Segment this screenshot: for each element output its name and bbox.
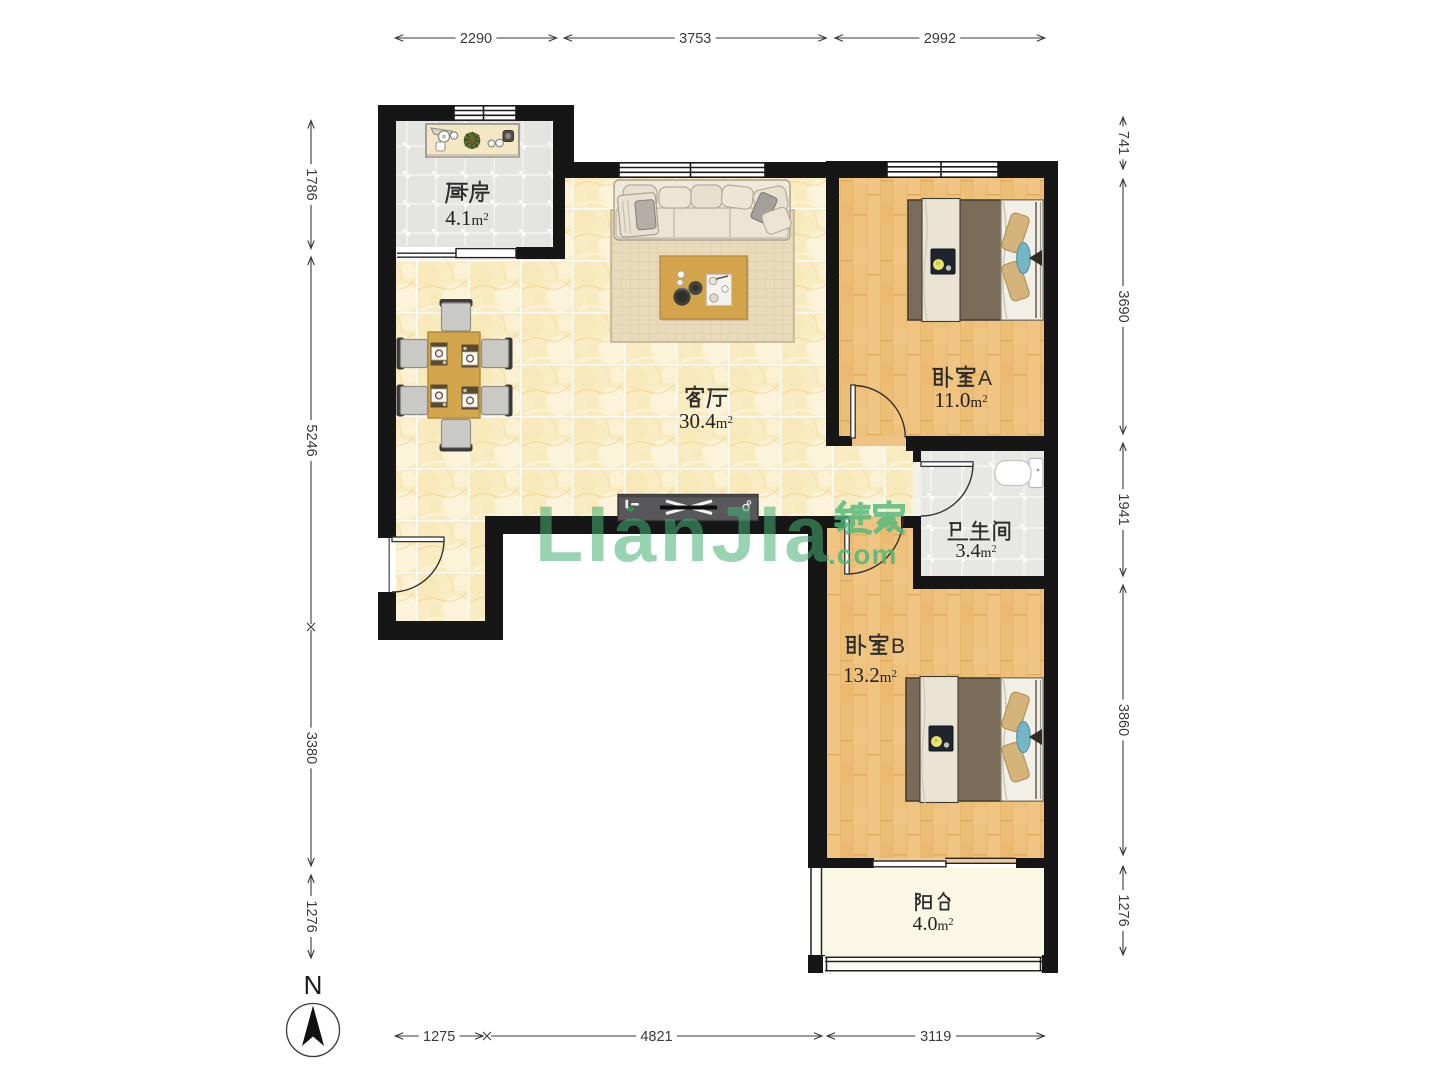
svg-text:4821: 4821 bbox=[640, 1029, 672, 1045]
svg-text:3119: 3119 bbox=[920, 1029, 951, 1045]
svg-text:2992: 2992 bbox=[924, 31, 956, 47]
svg-text:3860: 3860 bbox=[1115, 704, 1131, 736]
svg-text:1276: 1276 bbox=[1115, 894, 1131, 926]
svg-text:2290: 2290 bbox=[460, 31, 492, 47]
svg-text:3753: 3753 bbox=[679, 31, 711, 47]
svg-text:LIanJIa: LIanJIa bbox=[535, 489, 832, 578]
svg-text:1276: 1276 bbox=[303, 900, 319, 932]
svg-text:3380: 3380 bbox=[303, 732, 319, 764]
svg-text:1941: 1941 bbox=[1115, 493, 1131, 525]
svg-text:A: A bbox=[978, 367, 992, 390]
svg-text:.com: .com bbox=[828, 539, 897, 570]
svg-text:5246: 5246 bbox=[303, 424, 319, 456]
svg-text:1786: 1786 bbox=[303, 168, 319, 200]
svg-text:1275: 1275 bbox=[423, 1029, 455, 1045]
svg-text:N: N bbox=[304, 970, 323, 1000]
svg-text:3690: 3690 bbox=[1115, 290, 1131, 322]
svg-text:B: B bbox=[891, 635, 905, 658]
svg-text:741: 741 bbox=[1115, 131, 1131, 155]
